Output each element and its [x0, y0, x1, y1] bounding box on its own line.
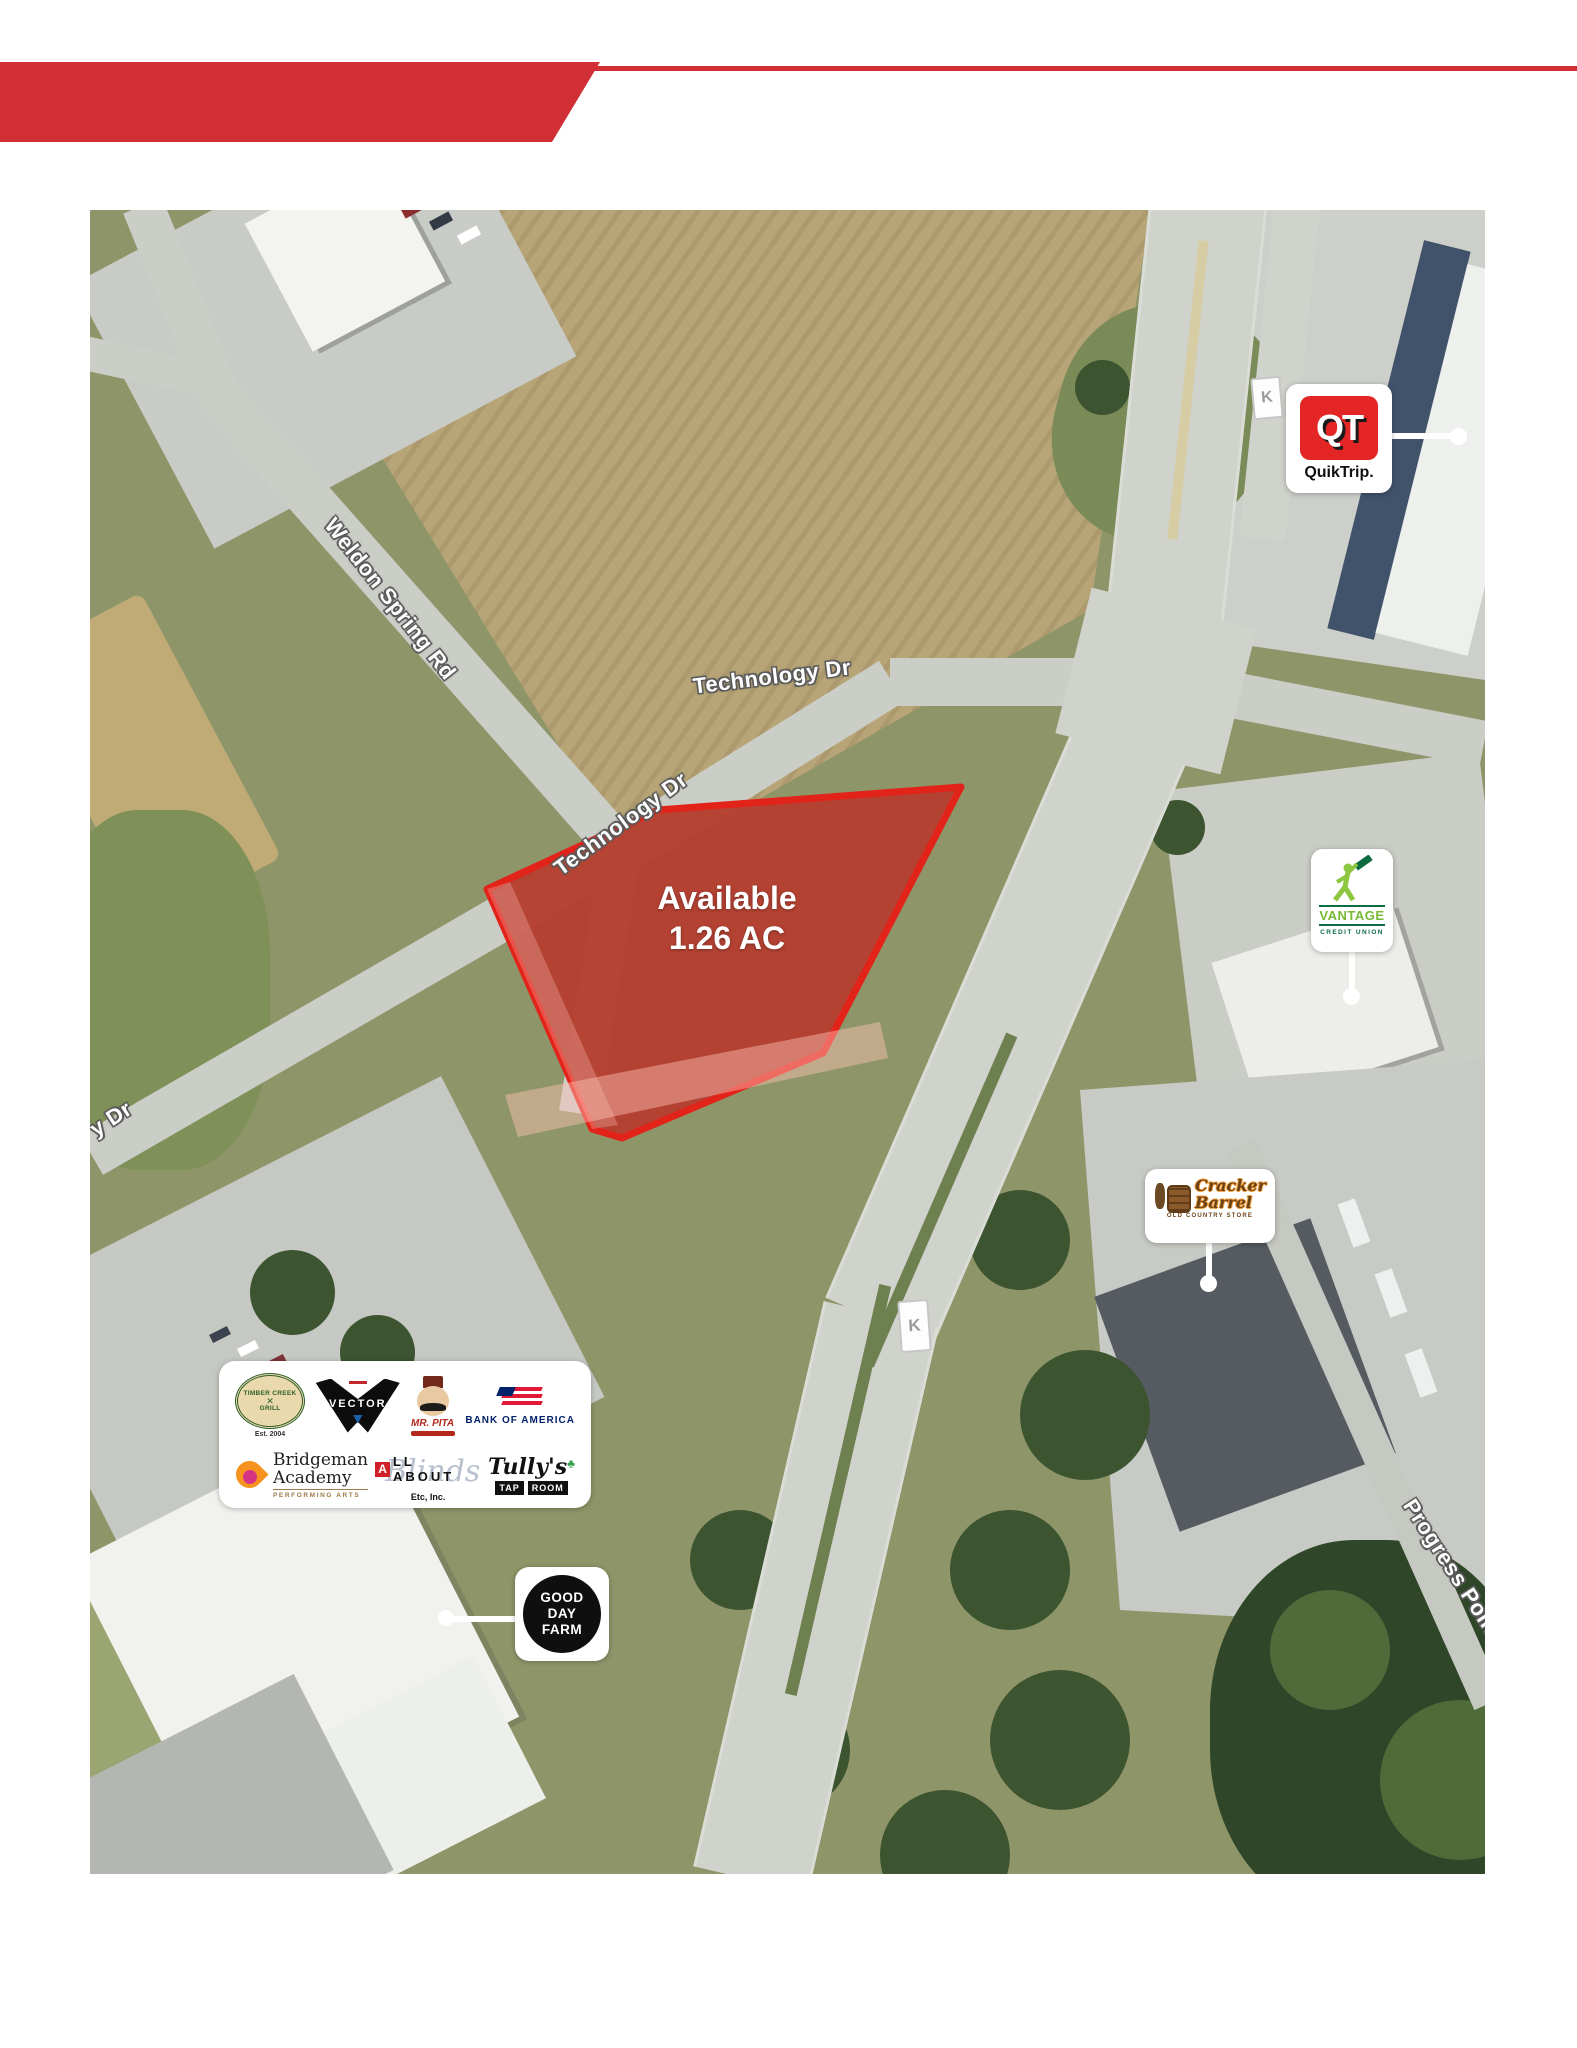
bridgeman-line2: Academy	[273, 1469, 368, 1487]
gdf-line1: GOOD	[540, 1590, 583, 1606]
bridgeman-tagline: PERFORMING ARTS	[273, 1489, 368, 1499]
good-day-farm-circle-icon: GOOD DAY FARM	[523, 1575, 601, 1653]
route-k-marker-north: K	[1250, 376, 1284, 420]
route-k-marker-south: K	[897, 1299, 932, 1353]
tree	[250, 1250, 335, 1335]
vantage-name: VANTAGE	[1319, 908, 1385, 923]
all-about-first-letter: A	[375, 1462, 390, 1477]
parcel-label-line2: 1.26 AC	[577, 918, 877, 958]
vector-logo: VECTOR	[316, 1379, 400, 1433]
quiktrip-icon: QT	[1300, 396, 1378, 460]
quiktrip-abbr: QT	[1316, 407, 1362, 449]
quiktrip-connector-dot	[1450, 428, 1467, 445]
tullys-room: ROOM	[528, 1481, 568, 1495]
vector-name: VECTOR	[316, 1398, 400, 1410]
timber-creek-est: Est. 2004	[255, 1431, 285, 1438]
cracker-barrel-connector-dot	[1200, 1275, 1217, 1292]
cracker-barrel-name-line1: Cracker	[1195, 1177, 1266, 1194]
parcel-label-line1: Available	[577, 878, 877, 918]
vantage-connector-dot	[1343, 988, 1360, 1005]
all-about-rest: LL ABOUT	[393, 1454, 481, 1484]
quiktrip-name: QuikTrip.	[1286, 464, 1392, 482]
tree	[880, 1790, 1010, 1874]
vector-red-accent	[349, 1381, 367, 1384]
mr-pita-banner	[411, 1431, 455, 1436]
crossed-utensils-icon: ✕	[266, 1397, 274, 1405]
cracker-barrel-tagline: OLD COUNTRY STORE	[1145, 1213, 1275, 1219]
tullys-name: Tully's	[488, 1454, 567, 1480]
cracker-barrel-logo-card: Cracker Barrel OLD COUNTRY STORE	[1145, 1169, 1275, 1243]
bank-of-america-logo: BANK OF AMERICA	[465, 1385, 575, 1426]
tree	[990, 1670, 1130, 1810]
tree	[1270, 1590, 1390, 1710]
tree	[950, 1510, 1070, 1630]
all-about-sub: Etc, Inc.	[375, 1492, 481, 1502]
gdf-line3: FARM	[542, 1622, 582, 1638]
parcel-availability-label: Available 1.26 AC	[577, 878, 877, 958]
timber-creek-oval-icon: TIMBER CREEK ✕ GRILL	[235, 1373, 305, 1429]
vantage-figure-icon	[1320, 855, 1384, 903]
shamrock-icon: ♣	[567, 1456, 575, 1470]
mustache-face-icon	[417, 1386, 449, 1416]
cracker-barrel-name-line2: Barrel	[1195, 1194, 1266, 1211]
site-banner	[0, 62, 1577, 142]
timber-creek-grill-logo: TIMBER CREEK ✕ GRILL Est. 2004	[235, 1373, 305, 1438]
vantage-tagline: CREDIT UNION	[1311, 929, 1393, 936]
quiktrip-connector-line	[1392, 433, 1458, 439]
header-rule	[592, 66, 1577, 71]
good-day-farm-logo-card: GOOD DAY FARM	[515, 1567, 609, 1661]
vantage-logo-card: VANTAGE CREDIT UNION	[1311, 849, 1393, 952]
flyer-page: Site	[0, 0, 1577, 2048]
tullys-tap-room-logo: Tully's♣ TAP ROOM	[488, 1456, 575, 1495]
bridgeman-academy-logo: Bridgeman Academy PERFORMING ARTS	[235, 1451, 368, 1499]
aerial-map: Available 1.26 AC Technology Dr Technolo…	[90, 210, 1485, 1874]
bank-of-america-name: BANK OF AMERICA	[465, 1415, 575, 1426]
bridgeman-line1: Bridgeman	[273, 1451, 368, 1469]
mr-pita-logo: MR. PITA	[411, 1376, 455, 1436]
cracker-barrel-icon	[1155, 1177, 1189, 1211]
tree	[1020, 1350, 1150, 1480]
good-day-farm-connector-line	[451, 1616, 515, 1622]
flame-icon	[235, 1456, 265, 1494]
gdf-line2: DAY	[548, 1606, 577, 1622]
quiktrip-logo-card: QT QuikTrip.	[1286, 384, 1392, 493]
tree	[1075, 360, 1130, 415]
good-day-farm-connector-dot	[438, 1610, 454, 1626]
timber-creek-line2: GRILL	[260, 1405, 281, 1412]
tenant-logo-card: TIMBER CREEK ✕ GRILL Est. 2004 VECTOR	[219, 1361, 591, 1508]
all-about-blinds-logo: Blinds A LL ABOUT Etc, Inc.	[375, 1448, 481, 1502]
mr-pita-name: MR. PITA	[411, 1418, 454, 1429]
page-title: Site	[72, 0, 133, 80]
tullys-tap: TAP	[495, 1481, 523, 1495]
bank-of-america-flag-icon	[496, 1385, 544, 1409]
